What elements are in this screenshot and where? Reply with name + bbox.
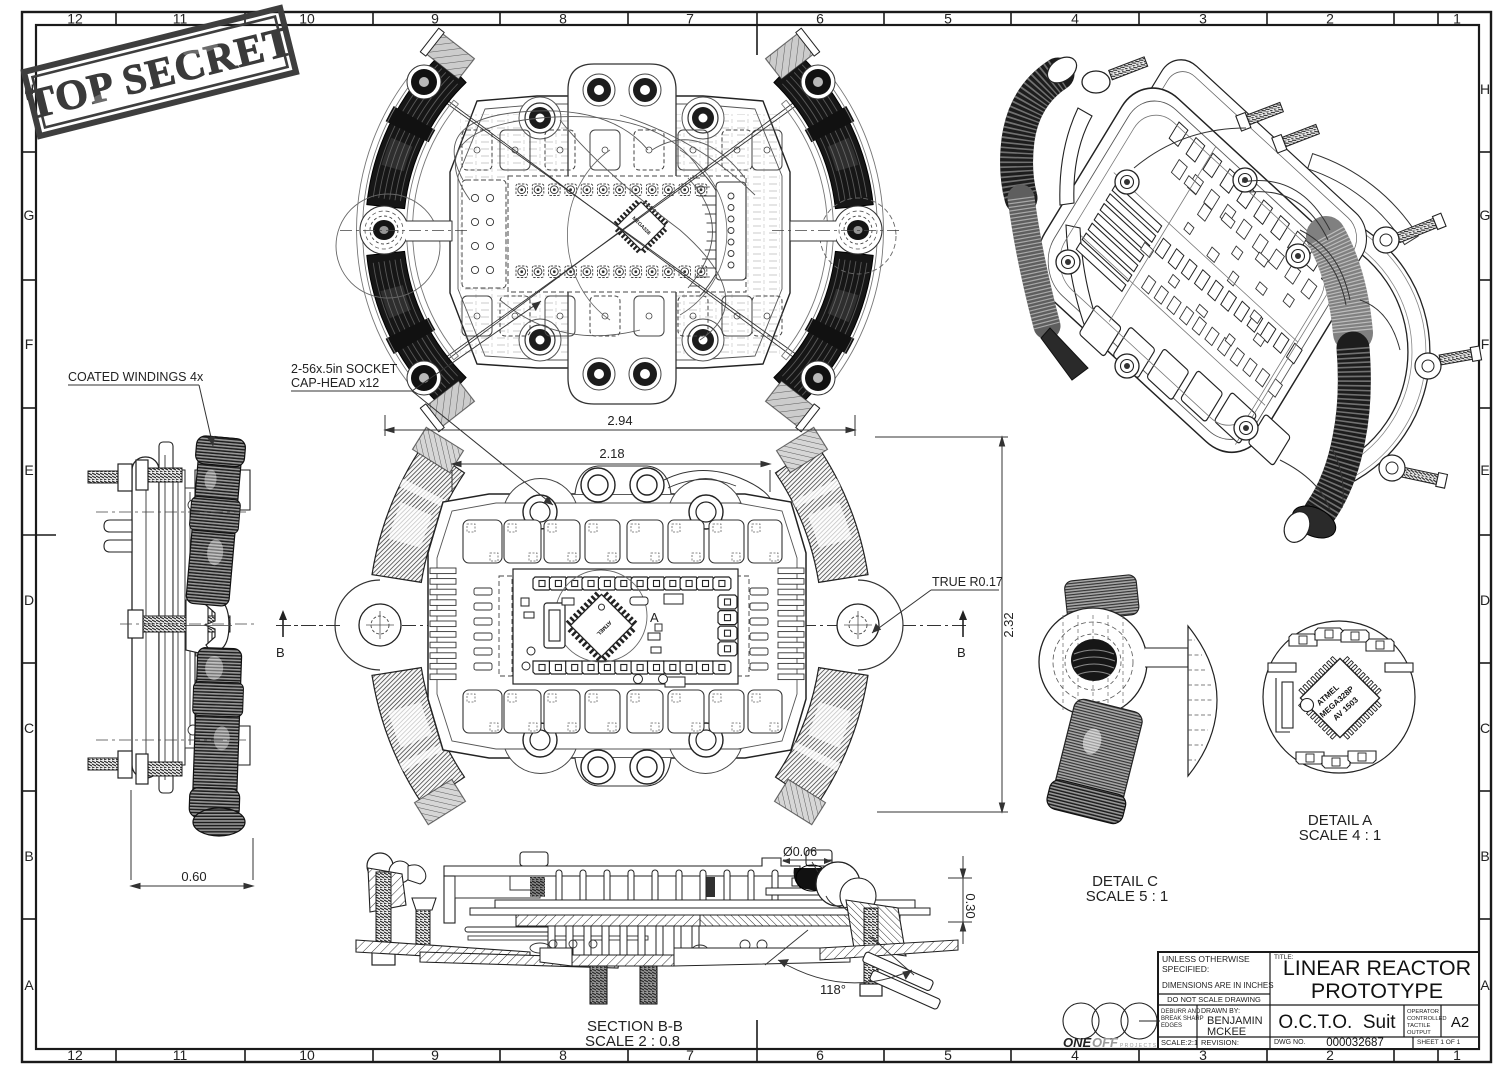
svg-text:2-56x.5in SOCKET: 2-56x.5in SOCKET [291, 362, 398, 376]
svg-text:SCALE:2:1: SCALE:2:1 [1161, 1038, 1198, 1047]
svg-text:EDGES: EDGES [1161, 1023, 1182, 1029]
svg-text:1: 1 [1453, 11, 1461, 27]
svg-text:11: 11 [173, 11, 188, 27]
svg-text:A2: A2 [1451, 1014, 1469, 1031]
svg-text:12: 12 [67, 1047, 83, 1063]
svg-text:12: 12 [67, 11, 83, 27]
svg-text:0.30: 0.30 [963, 893, 978, 918]
svg-text:D: D [24, 592, 34, 608]
svg-text:SCALE 4 : 1: SCALE 4 : 1 [1299, 827, 1382, 844]
svg-text:TRUE R0.17: TRUE R0.17 [932, 575, 1003, 589]
svg-text:C: C [24, 720, 34, 736]
svg-text:A: A [24, 977, 34, 993]
svg-text:9: 9 [431, 11, 439, 27]
svg-text:SCALE 5 : 1: SCALE 5 : 1 [1086, 888, 1169, 905]
svg-text:4: 4 [1071, 11, 1079, 27]
svg-text:MCKEE: MCKEE [1207, 1026, 1246, 1038]
svg-text:10: 10 [299, 1047, 315, 1063]
svg-text:000032687: 000032687 [1326, 1037, 1384, 1049]
svg-text:COATED WINDINGS 4x: COATED WINDINGS 4x [68, 370, 204, 384]
svg-text:ONE: ONE [1063, 1035, 1092, 1050]
svg-text:H: H [1480, 81, 1490, 97]
svg-text:0.60: 0.60 [181, 869, 206, 884]
svg-text:DRAWN BY:: DRAWN BY: [1201, 1008, 1240, 1015]
svg-text:8: 8 [559, 1047, 567, 1063]
svg-text:11: 11 [173, 1047, 188, 1063]
svg-text:OFF: OFF [1092, 1035, 1119, 1050]
svg-text:B: B [276, 645, 285, 660]
svg-text:OUTPUT: OUTPUT [1407, 1030, 1431, 1036]
svg-text:Ø0.06: Ø0.06 [783, 845, 817, 859]
svg-text:DWG NO.: DWG NO. [1274, 1039, 1306, 1046]
svg-text:118°: 118° [820, 982, 846, 997]
svg-text:SCALE 2 : 0.8: SCALE 2 : 0.8 [585, 1033, 680, 1050]
svg-text:DO NOT SCALE DRAWING: DO NOT SCALE DRAWING [1167, 995, 1261, 1004]
svg-text:F: F [1481, 336, 1490, 352]
svg-text:2.32: 2.32 [1001, 612, 1016, 637]
svg-text:OPERATOR: OPERATOR [1407, 1009, 1439, 1015]
svg-text:BREAK SHARP: BREAK SHARP [1161, 1016, 1204, 1022]
svg-text:2: 2 [1326, 11, 1334, 27]
svg-text:2.18: 2.18 [599, 446, 624, 461]
svg-text:10: 10 [299, 11, 315, 27]
svg-text:DIMENSIONS ARE IN INCHES: DIMENSIONS ARE IN INCHES [1162, 981, 1274, 990]
svg-text:B: B [24, 848, 33, 864]
svg-text:5: 5 [944, 1047, 952, 1063]
svg-text:B: B [1480, 848, 1489, 864]
svg-text:TACTILE: TACTILE [1407, 1023, 1431, 1029]
svg-text:E: E [24, 462, 33, 478]
svg-text:C: C [1480, 720, 1490, 736]
svg-text:F: F [25, 336, 34, 352]
svg-text:E: E [1480, 462, 1489, 478]
svg-text:7: 7 [686, 11, 694, 27]
svg-text:G: G [24, 207, 35, 223]
svg-text:SPECIFIED:: SPECIFIED: [1162, 964, 1209, 974]
svg-text:CONTROLLED: CONTROLLED [1407, 1016, 1447, 1022]
svg-text:DEBURR AND: DEBURR AND [1161, 1009, 1201, 1015]
svg-text:O.C.T.O. Suit: O.C.T.O. Suit [1278, 1012, 1396, 1033]
svg-text:8: 8 [559, 11, 567, 27]
svg-text:UNLESS OTHERWISE: UNLESS OTHERWISE [1162, 954, 1250, 964]
svg-text:G: G [1480, 207, 1491, 223]
svg-text:LINEAR REACTOR: LINEAR REACTOR [1283, 956, 1471, 980]
svg-text:B: B [957, 645, 966, 660]
svg-text:P R O J E C T S: P R O J E C T S [1120, 1043, 1157, 1049]
svg-text:D: D [1480, 592, 1490, 608]
svg-text:2.94: 2.94 [607, 413, 632, 428]
svg-text:REVISION:: REVISION: [1201, 1038, 1239, 1047]
svg-text:A: A [1480, 977, 1490, 993]
svg-text:6: 6 [816, 1047, 824, 1063]
svg-text:6: 6 [816, 11, 824, 27]
svg-text:A: A [650, 610, 659, 625]
svg-text:7: 7 [686, 1047, 694, 1063]
svg-text:3: 3 [1199, 11, 1207, 27]
svg-text:CAP-HEAD x12: CAP-HEAD x12 [291, 376, 379, 390]
svg-text:9: 9 [431, 1047, 439, 1063]
svg-text:5: 5 [944, 11, 952, 27]
svg-text:PROTOTYPE: PROTOTYPE [1311, 979, 1443, 1003]
svg-text:SHEET 1 OF 1: SHEET 1 OF 1 [1417, 1039, 1461, 1046]
